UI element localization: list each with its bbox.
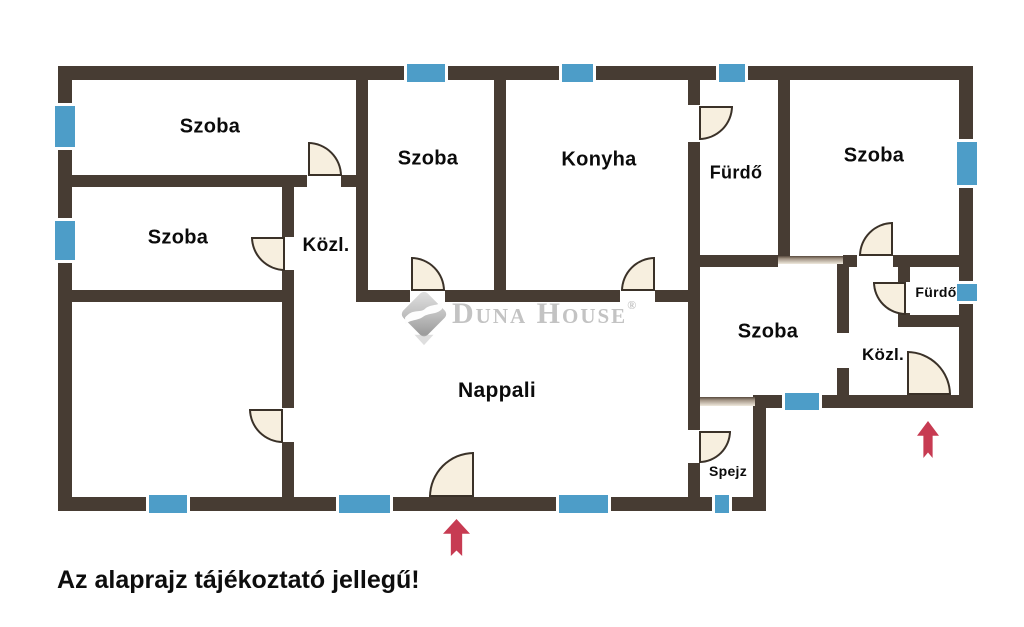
window xyxy=(55,103,75,150)
window xyxy=(957,281,977,304)
door-swing xyxy=(873,282,906,315)
disclaimer-text: Az alaprajz tájékoztató jellegű! xyxy=(57,566,420,595)
room-label-konyha: Konyha xyxy=(561,149,636,172)
wall-segment xyxy=(58,175,307,187)
window xyxy=(146,495,190,513)
window xyxy=(55,218,75,263)
wall-segment xyxy=(494,80,506,302)
wall-segment xyxy=(282,442,294,497)
room-label-furdo-1: Fürdő xyxy=(710,163,763,184)
wall-segment xyxy=(893,255,973,267)
opening-threshold xyxy=(778,256,843,264)
entrance-arrow-icon xyxy=(917,421,939,458)
wall-segment xyxy=(837,368,849,398)
wall-segment xyxy=(688,80,700,105)
door-swing xyxy=(429,452,474,497)
wall-segment xyxy=(58,66,973,80)
registered-mark: ® xyxy=(627,298,636,312)
room-label-spejz: Spejz xyxy=(709,463,747,479)
door-swing xyxy=(308,142,342,176)
window xyxy=(404,64,448,82)
room-label-kozl-2: Közl. xyxy=(862,345,904,365)
floor-plan: SzobaSzobaKözl.SzobaKonyhaFürdőSzobaSzob… xyxy=(0,0,1024,627)
wall-segment xyxy=(753,395,766,511)
wall-segment xyxy=(959,66,973,408)
window xyxy=(957,139,977,188)
entrance-arrow-icon xyxy=(443,519,470,556)
door-swing xyxy=(699,431,731,463)
window xyxy=(782,393,822,410)
room-label-szoba-4: Szoba xyxy=(844,145,904,168)
window xyxy=(556,495,611,513)
window xyxy=(559,64,596,82)
room-label-nappali: Nappali xyxy=(458,379,536,403)
wall-segment xyxy=(356,290,410,302)
wall-segment xyxy=(688,255,778,267)
wall-segment xyxy=(778,80,790,258)
room-label-szoba-1: Szoba xyxy=(180,116,240,139)
wall-segment xyxy=(688,463,700,497)
door-swing xyxy=(907,351,951,395)
room-label-furdo-2: Fürdő xyxy=(915,284,956,300)
wall-segment xyxy=(58,290,294,302)
wall-segment xyxy=(655,290,700,302)
wall-segment xyxy=(445,290,620,302)
wall-segment xyxy=(898,315,960,327)
wall-segment xyxy=(837,260,849,333)
door-swing xyxy=(699,106,733,140)
door-swing xyxy=(859,222,893,256)
wall-segment xyxy=(843,255,857,267)
door-swing xyxy=(411,257,445,291)
room-label-szoba-3: Szoba xyxy=(398,148,458,171)
room-label-kozl-1: Közl. xyxy=(303,235,350,257)
door-swing xyxy=(621,257,655,291)
wall-segment xyxy=(356,80,368,302)
window xyxy=(336,495,393,513)
opening-threshold xyxy=(700,397,755,406)
wall-segment xyxy=(688,142,700,430)
window xyxy=(712,495,732,513)
door-swing xyxy=(251,237,285,271)
door-swing xyxy=(249,409,283,443)
window xyxy=(716,64,748,82)
wall-segment xyxy=(341,175,368,187)
room-label-szoba-5: Szoba xyxy=(738,321,798,344)
wall-segment xyxy=(282,292,294,408)
watermark-brand-text: Duna House® xyxy=(452,299,636,329)
room-label-szoba-2: Szoba xyxy=(148,227,208,250)
